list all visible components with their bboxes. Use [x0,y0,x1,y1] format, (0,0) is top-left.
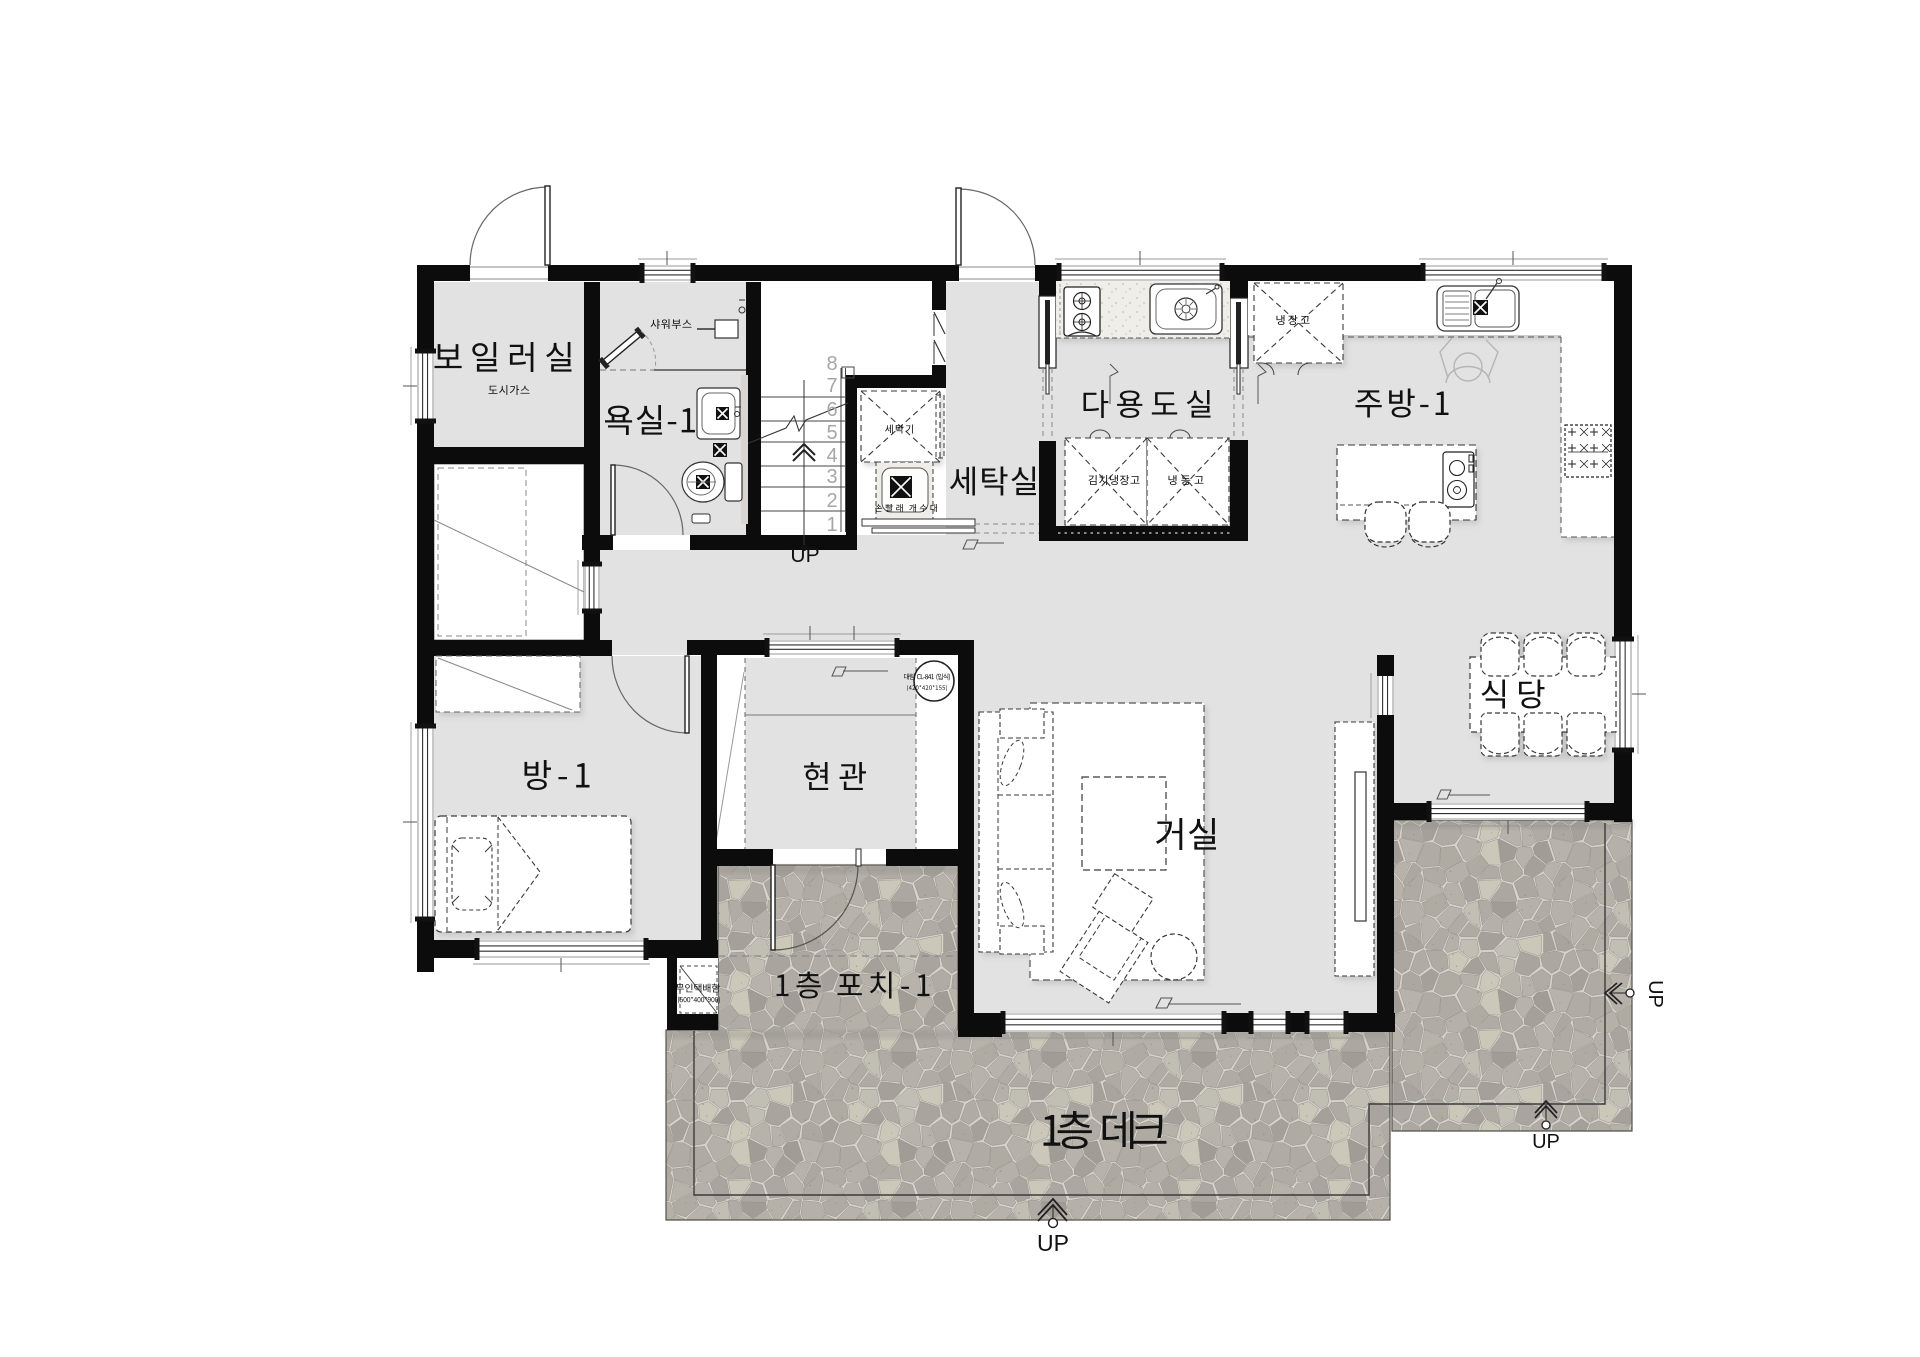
svg-text:3: 3 [826,466,837,488]
svg-text:7: 7 [826,375,837,397]
svg-text:8: 8 [826,353,837,375]
svg-text:4: 4 [826,445,837,467]
svg-text:6: 6 [826,399,837,421]
svg-text:1: 1 [826,514,837,536]
svg-text:UP: UP [1644,980,1666,1008]
svg-text:UP: UP [1037,1230,1069,1256]
svg-text:5: 5 [826,422,837,444]
svg-text:UP: UP [790,544,819,567]
svg-text:2: 2 [826,490,837,512]
svg-text:UP: UP [1532,1131,1560,1153]
